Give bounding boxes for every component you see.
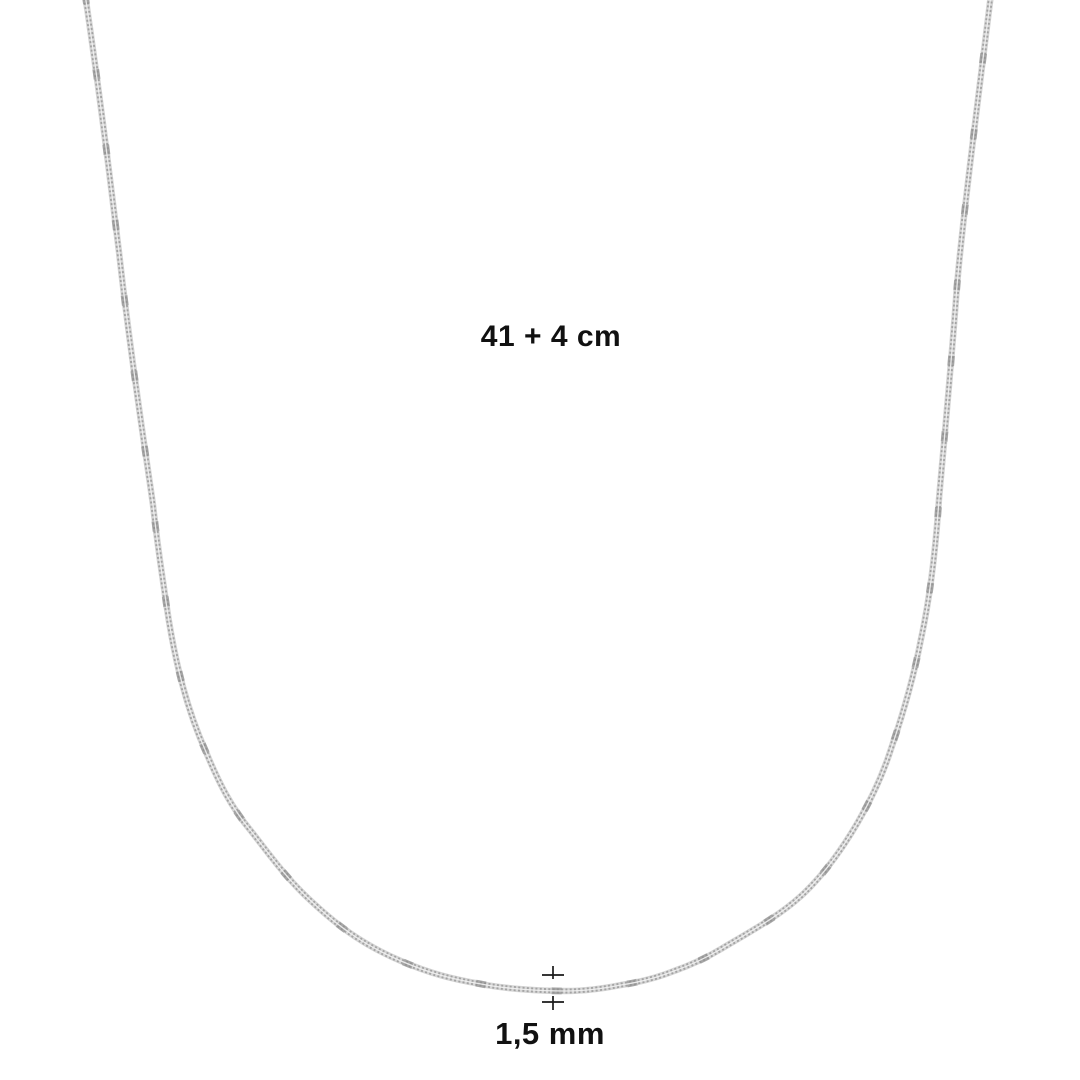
necklace-chain-svg: [0, 0, 1080, 1080]
chain-links-texture: [85, 0, 991, 991]
thickness-marker-bottom: [542, 996, 564, 1010]
chain-highlight: [85, 0, 991, 991]
product-image: 41 + 4 cm 1,5 mm: [0, 0, 1080, 1080]
chain-twist-accents: [85, 0, 991, 991]
chain-base: [85, 0, 991, 991]
length-label: 41 + 4 cm: [481, 320, 621, 354]
thickness-label: 1,5 mm: [495, 1016, 605, 1052]
thickness-marker-top: [542, 966, 564, 979]
